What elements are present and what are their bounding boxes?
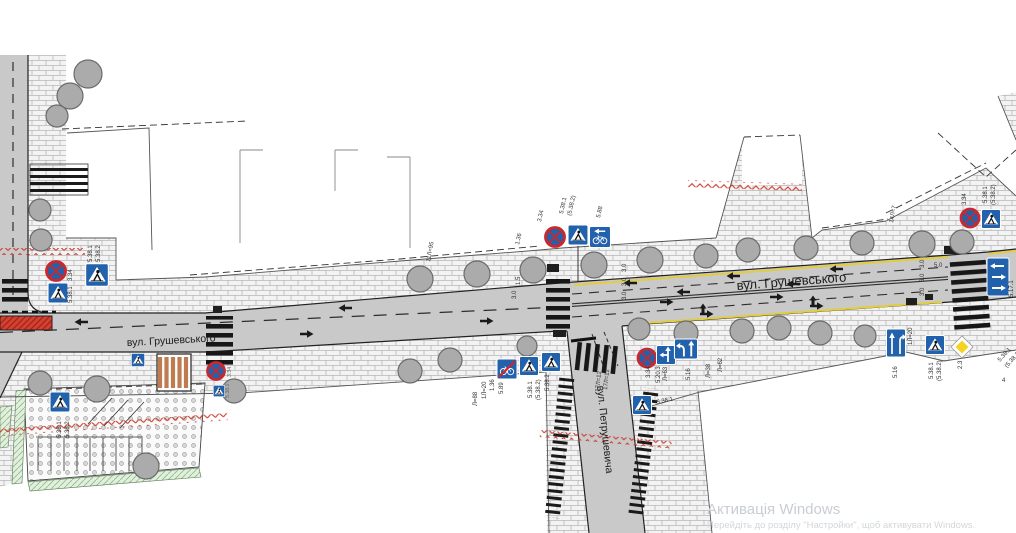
dim-label: 5.20.3	[656, 366, 662, 383]
dim-label: 5.38.2	[65, 421, 71, 438]
dim-label: 5.16	[893, 366, 899, 378]
tree	[808, 321, 832, 345]
dim-label: 3.0	[622, 291, 628, 300]
no-stopping-sign-icon	[46, 261, 67, 282]
no-stopping-sign-icon	[207, 362, 226, 381]
dim-label: 5.38.1	[983, 186, 989, 203]
dim-label: 3.34	[68, 269, 74, 281]
tree	[438, 348, 462, 372]
bike-path-end-sign-icon	[497, 359, 517, 379]
dim-label: 5.17.1	[1009, 280, 1015, 297]
dim-label: 3.0	[622, 263, 628, 272]
driveway-stub-white	[742, 135, 802, 186]
crosswalk-zebra	[546, 276, 570, 332]
crosswalk-zebra-small	[2, 277, 28, 302]
road-left-vertical	[0, 55, 28, 315]
tree	[28, 371, 52, 395]
equipment-blob	[547, 264, 559, 272]
dim-label: Л=62	[718, 357, 724, 372]
tree	[637, 247, 663, 273]
crosswalk-zebra	[950, 257, 991, 331]
dim-label: 3.34	[227, 367, 233, 377]
no-stopping-sign-icon	[960, 208, 980, 228]
crosswalk-zebra-side-street	[574, 342, 621, 374]
dim-label: 1.36	[490, 379, 496, 391]
tree	[517, 336, 537, 356]
pedestrian-crossing-sign-icon	[520, 357, 539, 376]
dim-label: (5.38.2)	[937, 360, 943, 381]
stairs-steps	[30, 164, 88, 195]
dim-label: 5.0	[934, 263, 943, 269]
tree	[46, 105, 68, 127]
bike-path-sign-icon	[590, 227, 611, 248]
no-stopping-sign-icon	[637, 348, 657, 368]
dim-label: 1Л=20	[908, 327, 914, 345]
dim-label: 3.0	[920, 287, 926, 296]
dim-label: 5.16	[686, 368, 692, 380]
lane-count-sign-icon	[987, 258, 1009, 296]
tree	[29, 199, 51, 221]
tree	[133, 453, 159, 479]
tree	[30, 229, 52, 251]
dim-label: 3.34	[646, 366, 652, 378]
lane-direction-sign-icon	[887, 329, 907, 357]
tree	[520, 257, 546, 283]
dim-label: 5.38.1	[528, 381, 534, 398]
dim-label: 5.89	[499, 382, 505, 394]
tree	[84, 376, 110, 402]
no-stopping-sign-icon	[545, 227, 566, 248]
dim-label: 3.0	[920, 259, 926, 268]
watermark-title: Активація Windows	[707, 501, 840, 518]
tree	[398, 359, 422, 383]
dim-label: (5.38.2)	[536, 379, 542, 400]
pedestrian-crossing-sign-icon	[213, 385, 224, 396]
pedestrian-crossing-sign-icon	[568, 225, 588, 245]
dim-label: 1.5	[516, 276, 522, 285]
equipment-blob	[213, 306, 222, 313]
tree	[464, 261, 490, 287]
dim-label: Л=63	[663, 366, 669, 381]
tree	[850, 231, 874, 255]
pedestrian-crossing-sign-icon	[86, 264, 109, 287]
pedestrian-crossing-sign-icon	[633, 396, 652, 415]
lane-direction-sign-icon	[657, 346, 676, 365]
dim-label: 3.0	[920, 273, 926, 282]
dim-label: 5.38.2	[545, 374, 551, 391]
stairs-top-left	[30, 164, 88, 195]
tree	[407, 266, 433, 292]
equipment-blob	[906, 298, 917, 305]
pedestrian-crossing-sign-icon	[50, 392, 70, 412]
dim-label: Л=38	[706, 363, 712, 378]
tree	[767, 316, 791, 340]
pedestrian-crossing-sign-icon	[48, 283, 68, 303]
tree	[74, 60, 102, 88]
tree	[730, 319, 754, 343]
dim-label: 5.38.1	[57, 421, 63, 438]
dim-label: 1Л=20	[482, 381, 488, 399]
pedestrian-crossing-sign-icon	[982, 210, 1001, 229]
pedestrian-crossing-sign-icon	[131, 353, 144, 366]
tree	[628, 318, 650, 340]
dim-label: (5.38.2)	[991, 184, 997, 205]
dim-label: 3.0	[512, 290, 518, 299]
dim-label: 5.38.1	[225, 383, 231, 398]
bus-stop-red-hatch	[0, 316, 52, 330]
raised-crossing	[157, 354, 191, 391]
street-plan-canvas: 3.34 5.38.1 5.38.1 5.38.2 5.38.1 5.38.2 …	[0, 0, 1016, 533]
plan-drawing: 3.34 5.38.1 5.38.1 5.38.2 5.38.1 5.38.2 …	[0, 0, 1016, 533]
tree	[794, 236, 818, 260]
dim-label: 3.0	[622, 277, 628, 286]
tree	[854, 325, 876, 347]
tree	[581, 252, 607, 278]
watermark-subtitle: Перейдіть до розділу "Настройки", щоб ак…	[707, 520, 975, 531]
dim-label: 5.38.1	[88, 245, 94, 262]
dim-label: 5.38.1	[929, 362, 935, 379]
dim-label: 5.38.2	[96, 245, 102, 262]
tree	[909, 231, 935, 257]
tree	[694, 244, 718, 268]
dim-label: 5.38.1	[68, 286, 74, 303]
dim-label: 2.3	[958, 360, 964, 369]
equipment-blob	[925, 294, 933, 300]
tree	[736, 238, 760, 262]
equipment-blob	[553, 330, 566, 337]
dim-label: Л=88	[473, 391, 479, 406]
dim-label: 3.34	[962, 193, 968, 205]
tree	[950, 230, 974, 254]
pedestrian-crossing-sign-icon	[926, 336, 945, 355]
pedestrian-crossing-sign-icon	[542, 353, 561, 372]
lane-direction-sign-icon	[674, 339, 697, 359]
